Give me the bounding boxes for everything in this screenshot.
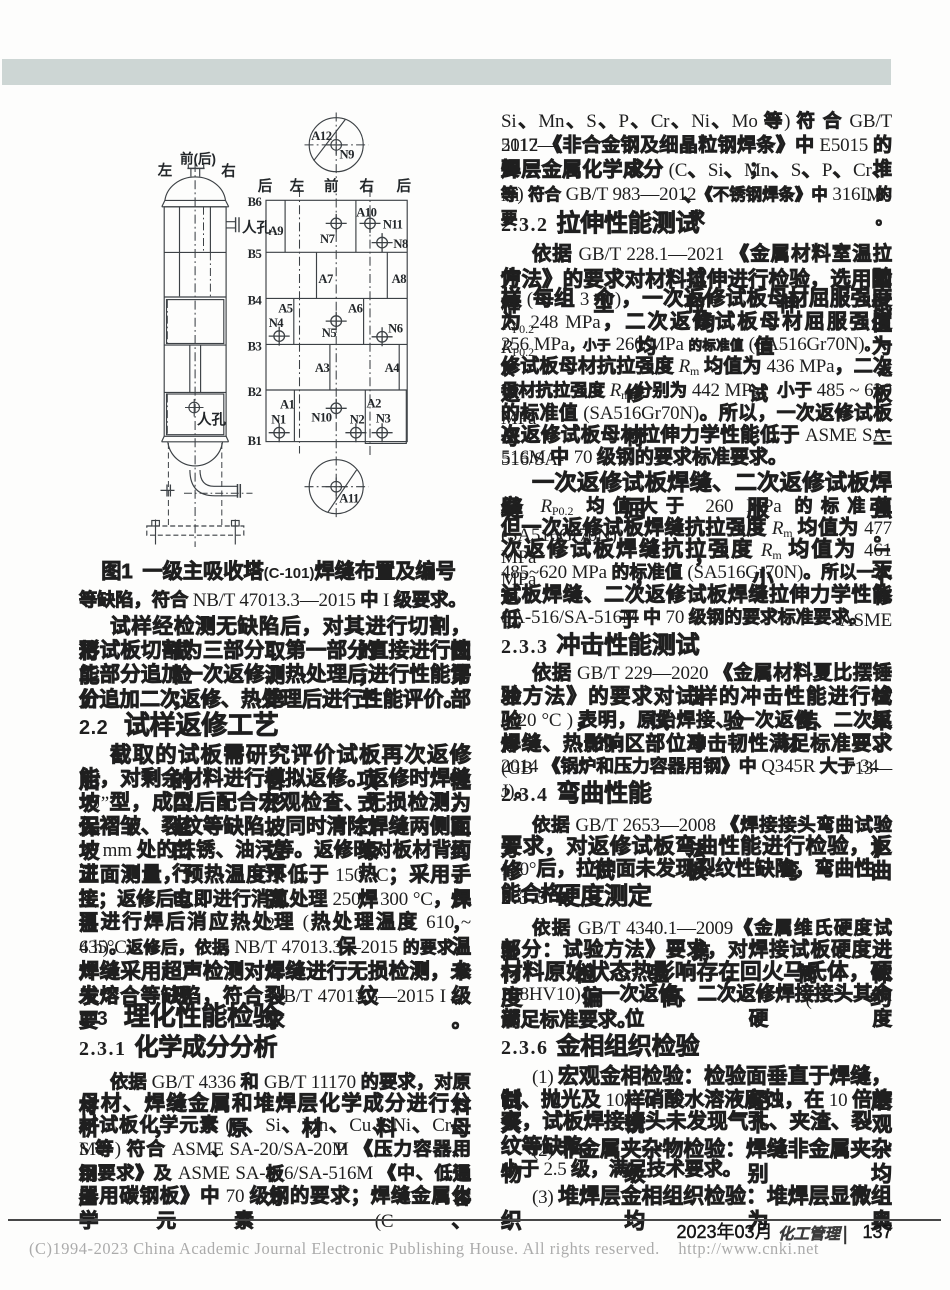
svg-text:右: 右 <box>221 162 236 180</box>
svg-text:前(后): 前(后) <box>180 151 216 167</box>
svg-text:B5: B5 <box>248 247 262 261</box>
svg-text:A12: A12 <box>311 129 331 143</box>
svg-text:N1: N1 <box>271 413 286 427</box>
svg-text:N4: N4 <box>269 316 285 330</box>
svg-text:A8: A8 <box>392 272 407 286</box>
svg-text:N6: N6 <box>388 322 403 336</box>
svg-text:后: 后 <box>258 178 273 195</box>
svg-text:A10: A10 <box>356 206 376 220</box>
svg-text:A5: A5 <box>278 302 293 316</box>
svg-text:A1: A1 <box>280 398 295 412</box>
svg-text:N3: N3 <box>376 412 391 426</box>
svg-text:后: 后 <box>397 178 412 195</box>
svg-text:左: 左 <box>289 177 305 195</box>
svg-text:A3: A3 <box>315 361 330 375</box>
svg-text:人孔: 人孔 <box>197 412 226 429</box>
svg-text:A7: A7 <box>318 272 333 286</box>
svg-text:B3: B3 <box>248 340 262 354</box>
svg-text:右: 右 <box>360 177 375 195</box>
svg-text:A6: A6 <box>348 302 363 316</box>
svg-text:N10: N10 <box>311 411 331 425</box>
svg-text:B2: B2 <box>248 385 262 399</box>
svg-text:A4: A4 <box>385 361 401 375</box>
svg-text:N5: N5 <box>322 326 337 340</box>
svg-text:左: 左 <box>157 162 173 180</box>
svg-text:A2: A2 <box>367 397 382 411</box>
svg-text:B6: B6 <box>248 195 262 209</box>
svg-text:N8: N8 <box>393 237 408 251</box>
svg-text:前: 前 <box>324 177 339 195</box>
svg-text:N2: N2 <box>350 413 365 427</box>
svg-text:N9: N9 <box>340 148 355 162</box>
svg-text:人孔: 人孔 <box>242 219 271 236</box>
svg-text:B4: B4 <box>248 294 263 308</box>
svg-text:B1: B1 <box>248 434 262 448</box>
svg-text:N11: N11 <box>383 218 403 232</box>
svg-text:N7: N7 <box>320 232 335 246</box>
svg-text:A11: A11 <box>339 492 359 506</box>
